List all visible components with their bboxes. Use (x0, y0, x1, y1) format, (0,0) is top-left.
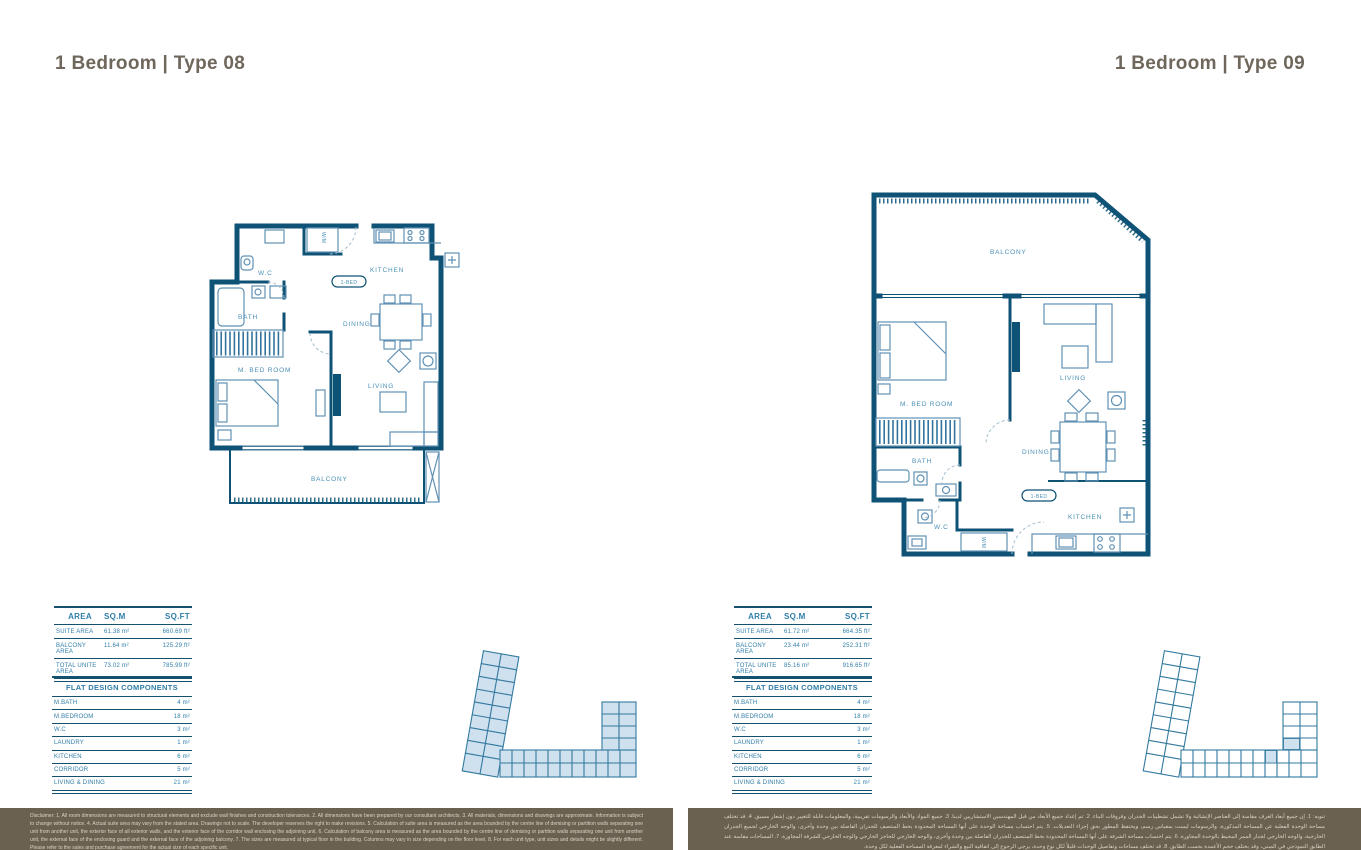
col-header-sqft: SQ.FT (144, 612, 190, 621)
table-cell: 18 m² (174, 714, 190, 720)
room-label-dining: DINING (343, 321, 371, 328)
highlighted-unit (1284, 739, 1300, 750)
room-label-kitchen: KITCHEN (1068, 514, 1102, 521)
room-label-dining: DINING (1022, 449, 1050, 456)
table-cell: LAUNDRY (54, 740, 177, 746)
table-cell: M.BATH (734, 700, 857, 706)
disclaimer-arabic: تنويه: 1. إن جميع أبعاد الغرف مقاسة إلى … (688, 808, 1361, 850)
table-cell: CORRIDOR (54, 767, 177, 773)
page-title-type09: 1 Bedroom | Type 09 (1115, 53, 1305, 75)
table-row: LAUNDRY1 m² (732, 737, 872, 750)
table-row: BALCONY AREA11.64 m²125.29 ft² (54, 639, 192, 659)
dining-table (1060, 422, 1106, 472)
page-title-type08: 1 Bedroom | Type 08 (55, 53, 245, 75)
room-label-wc: W.C (934, 524, 949, 531)
room-label-balcony: BALCONY (311, 476, 348, 483)
area-table-rows: SUITE AREA61.38 m²660.69 ft²BALCONY AREA… (54, 625, 192, 679)
washer-label: W/M (980, 537, 986, 548)
components-table-rows: M.BATH4 m²M.BEDROOM18 m²W.C3 m²LAUNDRY1 … (52, 697, 192, 791)
coffee-table (380, 392, 406, 412)
bed (878, 322, 946, 380)
table-row: SUITE AREA61.72 m²664.35 ft² (734, 625, 872, 639)
components-table-title: FLAT DESIGN COMPONENTS (52, 678, 192, 697)
bed (216, 380, 278, 426)
table-cell: 61.38 m² (104, 629, 144, 635)
brochure-page: 1 Bedroom | Type 08 1 Bedroom | Type 09 (0, 0, 1361, 850)
table-cell: 660.69 ft² (144, 629, 190, 635)
table-row: LIVING & DINING21 m² (732, 777, 872, 790)
table-cell: 664.35 ft² (824, 629, 870, 635)
table-cell: 1 m² (177, 740, 190, 746)
table-cell: 1 m² (857, 740, 870, 746)
table-cell: LAUNDRY (734, 740, 857, 746)
table-cell: 3 m² (857, 727, 870, 733)
table-cell: KITCHEN (54, 754, 177, 760)
table-cell: W.C (734, 727, 857, 733)
bed-tag-label: 1-BED (341, 280, 358, 286)
table-cell: M.BATH (54, 700, 177, 706)
sofa (424, 382, 438, 432)
col-header-area: AREA (56, 612, 104, 621)
dining-table (380, 304, 422, 340)
table-cell: BALCONY AREA (56, 643, 104, 655)
room-label-bath: BATH (912, 458, 932, 465)
table-row: M.BATH4 m² (52, 697, 192, 710)
table-row: LAUNDRY1 m² (52, 737, 192, 750)
table-row: CORRIDOR5 m² (732, 764, 872, 777)
table-cell: 785.99 ft² (144, 663, 190, 675)
table-row: BALCONY AREA23.44 m²252.31 ft² (734, 639, 872, 659)
table-row: W.C3 m² (732, 724, 872, 737)
table-row: W.C3 m² (52, 724, 192, 737)
stove-icon (1094, 534, 1120, 552)
table-cell: 4 m² (177, 700, 190, 706)
room-label-bath: BATH (238, 314, 258, 321)
table-cell: 85.16 m² (784, 663, 824, 675)
table-cell: 21 m² (854, 780, 870, 786)
room-label-master: M. BED ROOM (900, 401, 953, 408)
table-cell: M.BEDROOM (54, 714, 174, 720)
table-cell: W.C (54, 727, 177, 733)
room-label-living: LIVING (1060, 375, 1086, 382)
room-label-kitchen: KITCHEN (370, 267, 404, 274)
table-cell: 23.44 m² (784, 643, 824, 655)
table-row: KITCHEN6 m² (52, 751, 192, 764)
table-cell: 3 m² (177, 727, 190, 733)
col-header-sqft: SQ.FT (824, 612, 870, 621)
area-table-type09: AREA SQ.M SQ.FT SUITE AREA61.72 m²664.35… (734, 606, 872, 682)
disclaimer-english: Disclaimer: 1. All room dimensions are m… (0, 808, 673, 850)
components-table-type09: FLAT DESIGN COMPONENTS M.BATH4 m²M.BEDRO… (732, 676, 872, 794)
table-cell: LIVING & DINING (54, 780, 174, 786)
area-table-type08: AREA SQ.M SQ.FT SUITE AREA61.38 m²660.69… (54, 606, 192, 682)
table-cell: 18 m² (854, 714, 870, 720)
table-cell: 252.31 ft² (824, 643, 870, 655)
table-cell: 11.64 m² (104, 643, 144, 655)
table-cell: SUITE AREA (56, 629, 104, 635)
table-cell: 61.72 m² (784, 629, 824, 635)
room-label-balcony: BALCONY (990, 249, 1027, 256)
table-cell: KITCHEN (734, 754, 857, 760)
table-cell: TOTAL UNITE AREA (56, 663, 104, 675)
table-cell: 6 m² (177, 754, 190, 760)
components-table-type08: FLAT DESIGN COMPONENTS M.BATH4 m²M.BEDRO… (52, 676, 192, 794)
table-cell: 5 m² (177, 767, 190, 773)
table-cell: TOTAL UNITE AREA (736, 663, 784, 675)
stove-icon (404, 228, 429, 243)
sofa (1044, 304, 1096, 324)
table-cell: 21 m² (174, 780, 190, 786)
table-cell: 5 m² (857, 767, 870, 773)
room-label-master: M. BED ROOM (238, 367, 291, 374)
components-table-title: FLAT DESIGN COMPONENTS (732, 678, 872, 697)
table-cell: 4 m² (857, 700, 870, 706)
col-header-sqm: SQ.M (104, 612, 144, 621)
table-cell: SUITE AREA (736, 629, 784, 635)
table-row: KITCHEN6 m² (732, 751, 872, 764)
bed-tag-label: 1-BED (1031, 494, 1048, 500)
table-row: SUITE AREA61.38 m²660.69 ft² (54, 625, 192, 639)
table-cell: LIVING & DINING (734, 780, 854, 786)
table-cell: M.BEDROOM (734, 714, 854, 720)
table-row: CORRIDOR5 m² (52, 764, 192, 777)
floorplan-type08: W.C BATH M. BED ROOM KITCHEN DINING LIVI… (210, 222, 462, 517)
floorplan-type09: BALCONY M. BED ROOM LIVING DINING KITCHE… (862, 188, 1162, 568)
keyplan-type08 (452, 650, 652, 790)
area-table-header: AREA SQ.M SQ.FT (54, 608, 192, 625)
area-table-header: AREA SQ.M SQ.FT (734, 608, 872, 625)
washer-label: W/M (320, 232, 326, 243)
keyplan-type09 (1133, 650, 1333, 790)
table-cell: 916.65 ft² (824, 663, 870, 675)
area-table-rows: SUITE AREA61.72 m²664.35 ft²BALCONY AREA… (734, 625, 872, 679)
table-cell: 125.29 ft² (144, 643, 190, 655)
col-header-sqm: SQ.M (784, 612, 824, 621)
col-header-area: AREA (736, 612, 784, 621)
table-row: LIVING & DINING21 m² (52, 777, 192, 790)
components-table-rows: M.BATH4 m²M.BEDROOM18 m²W.C3 m²LAUNDRY1 … (732, 697, 872, 791)
table-cell: 6 m² (857, 754, 870, 760)
table-cell: BALCONY AREA (736, 643, 784, 655)
table-cell: CORRIDOR (734, 767, 857, 773)
table-row: M.BATH4 m² (732, 697, 872, 710)
table-row: M.BEDROOM18 m² (732, 710, 872, 723)
highlighted-unit (1266, 751, 1277, 764)
table-cell: 73.02 m² (104, 663, 144, 675)
table-row: M.BEDROOM18 m² (52, 710, 192, 723)
room-label-living: LIVING (368, 383, 394, 390)
coffee-table (1062, 346, 1088, 368)
room-label-wc: W.C (258, 270, 273, 277)
